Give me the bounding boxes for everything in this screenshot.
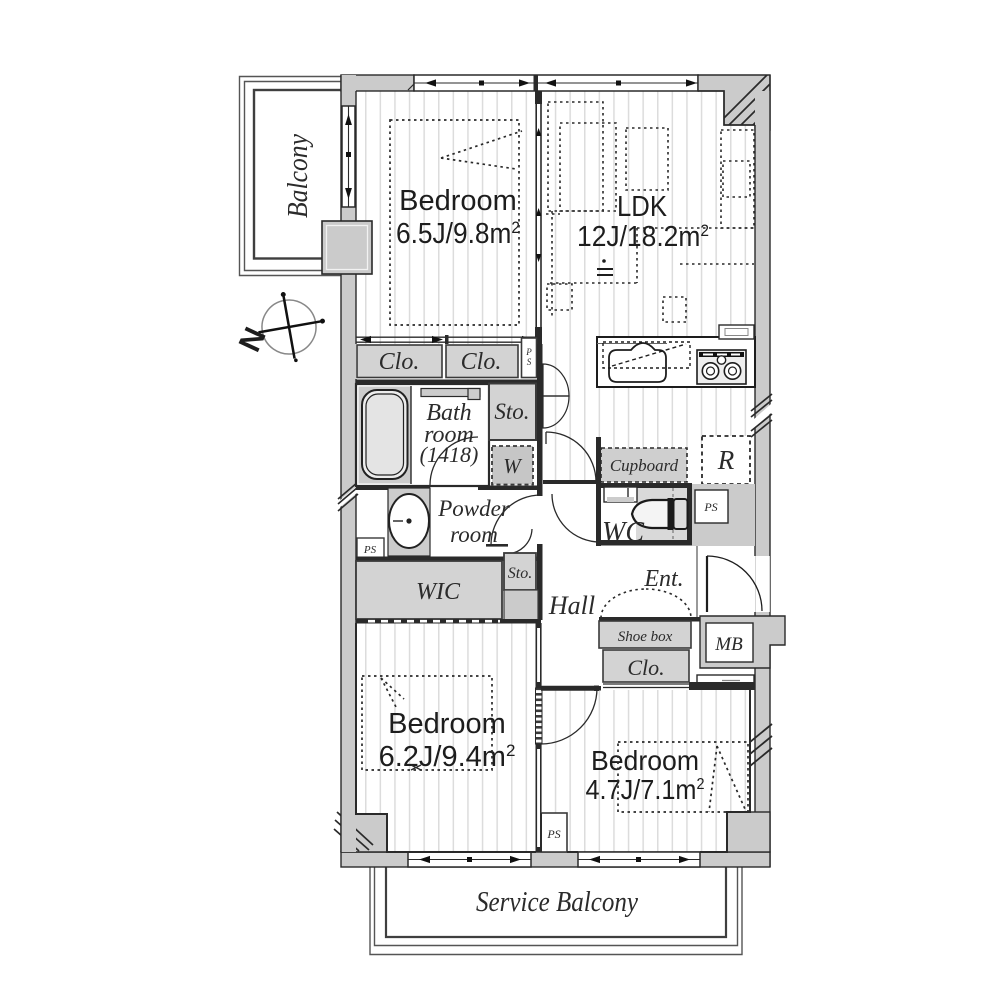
- svg-text:R: R: [717, 445, 735, 475]
- svg-text:PS: PS: [703, 500, 717, 514]
- svg-text:LDK: LDK: [617, 191, 668, 223]
- svg-text:Bedroom: Bedroom: [399, 185, 517, 217]
- svg-text:12J/18.2m2: 12J/18.2m2: [577, 221, 709, 253]
- svg-text:WC: WC: [602, 517, 644, 548]
- svg-text:Ent.: Ent.: [643, 566, 683, 592]
- svg-text:4.7J/7.1m2: 4.7J/7.1m2: [586, 774, 705, 805]
- svg-text:Service Balcony: Service Balcony: [476, 887, 639, 918]
- svg-text:6.5J/9.8m2: 6.5J/9.8m2: [396, 218, 520, 250]
- svg-text:Bedroom: Bedroom: [591, 745, 699, 776]
- svg-text:P: P: [525, 347, 532, 357]
- svg-text:(1418): (1418): [420, 442, 479, 467]
- svg-text:PS: PS: [363, 544, 377, 556]
- svg-text:PS: PS: [546, 827, 560, 841]
- svg-text:Balcony: Balcony: [283, 133, 314, 218]
- svg-text:Clo.: Clo.: [461, 349, 502, 375]
- svg-text:6.2J/9.4m2: 6.2J/9.4m2: [379, 741, 516, 773]
- svg-text:Sto.: Sto.: [494, 399, 529, 424]
- svg-text:Bedroom: Bedroom: [388, 708, 506, 740]
- svg-text:Cupboard: Cupboard: [610, 456, 679, 475]
- svg-text:W: W: [503, 454, 523, 478]
- svg-text:S: S: [527, 357, 532, 367]
- svg-text:Clo.: Clo.: [379, 349, 420, 375]
- svg-text:Clo.: Clo.: [627, 655, 664, 680]
- svg-text:Hall: Hall: [548, 591, 595, 620]
- svg-text:WIC: WIC: [416, 579, 461, 605]
- svg-text:MB: MB: [714, 634, 743, 655]
- svg-text:Sto.: Sto.: [508, 565, 532, 582]
- svg-text:Shoe box: Shoe box: [618, 629, 673, 645]
